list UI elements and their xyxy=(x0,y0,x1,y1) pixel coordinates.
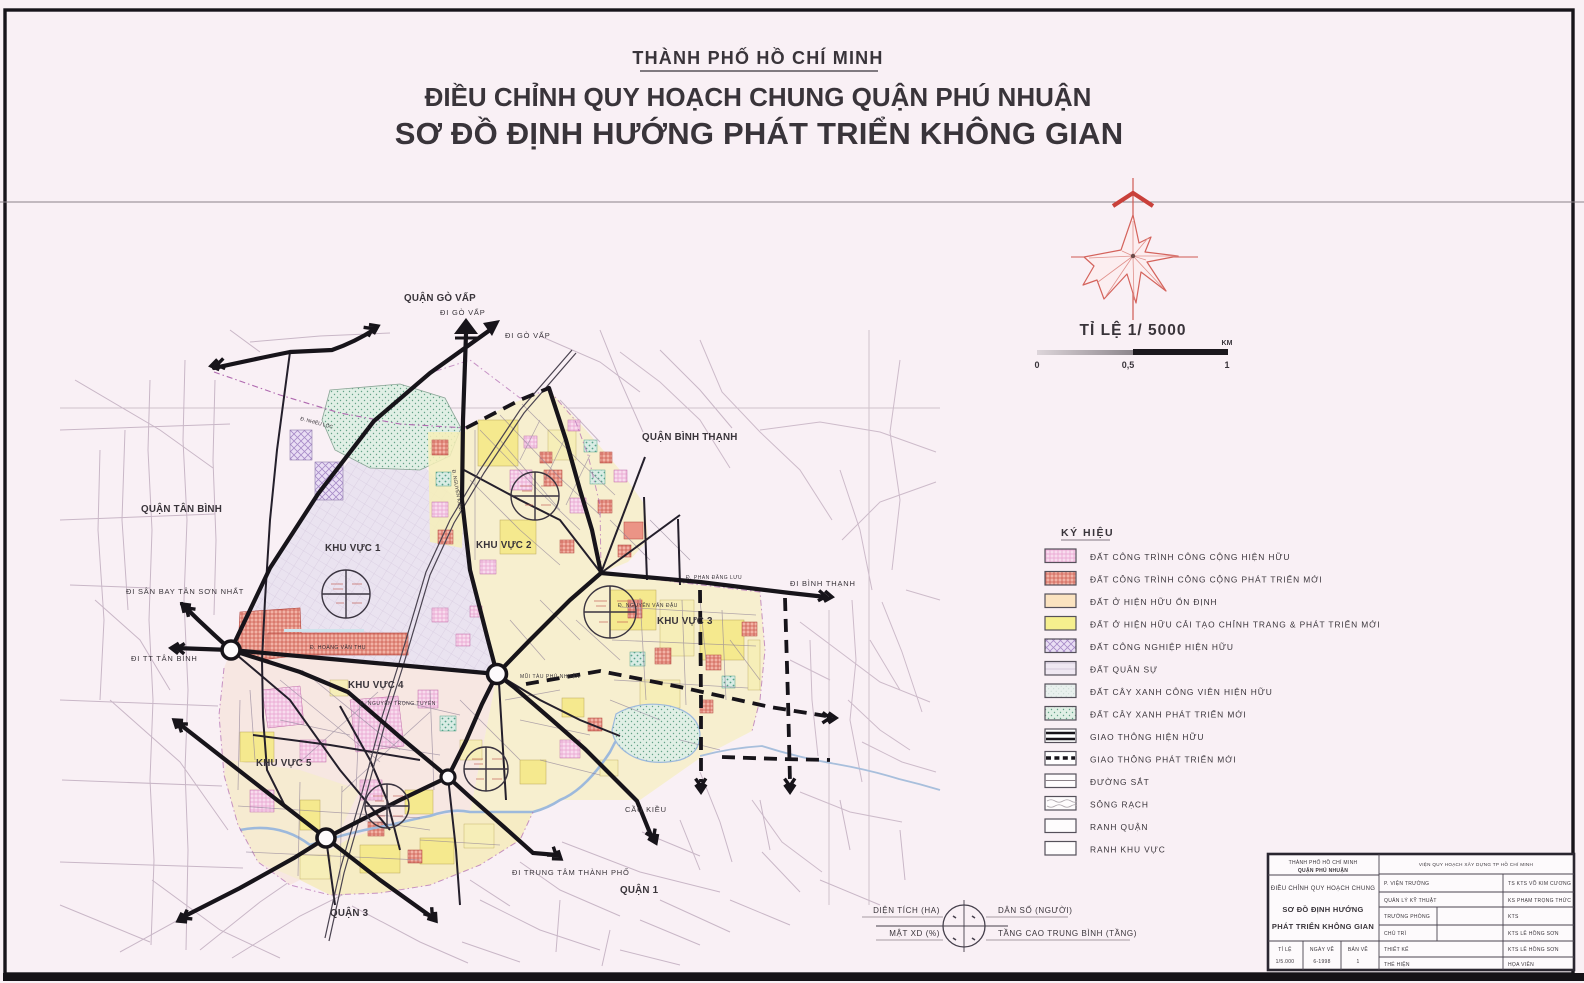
svg-text:ĐẤT CÂY XANH PHÁT TRIỂN MỚI: ĐẤT CÂY XANH PHÁT TRIỂN MỚI xyxy=(1090,709,1247,720)
svg-text:QUẬN 3: QUẬN 3 xyxy=(330,907,369,919)
svg-text:ĐẤT CÂY XANH CÔNG VIÊN HIỆN HỮ: ĐẤT CÂY XANH CÔNG VIÊN HIỆN HỮU xyxy=(1090,687,1273,697)
svg-text:PHÁT TRIỂN KHÔNG GIAN: PHÁT TRIỂN KHÔNG GIAN xyxy=(1272,922,1374,931)
svg-text:KTS LÊ HỒNG SƠN: KTS LÊ HỒNG SƠN xyxy=(1508,945,1559,953)
svg-text:KTS: KTS xyxy=(1508,914,1519,920)
svg-text:QUẢN LÝ KỸ THUẬT: QUẢN LÝ KỸ THUẬT xyxy=(1384,897,1437,904)
svg-text:Đ. HOÀNG VĂN THỤ: Đ. HOÀNG VĂN THỤ xyxy=(310,644,366,651)
svg-text:KÝ HIỆU: KÝ HIỆU xyxy=(1061,526,1114,539)
svg-text:ĐI TT TÂN BÌNH: ĐI TT TÂN BÌNH xyxy=(131,654,198,663)
svg-text:ĐI GÒ VẤP: ĐI GÒ VẤP xyxy=(505,330,551,340)
svg-text:KHU VỰC 5: KHU VỰC 5 xyxy=(256,758,312,769)
svg-text:CẦU KIỀU: CẦU KIỀU xyxy=(625,804,667,814)
svg-text:TỈ LỆ 1/ 5000: TỈ LỆ 1/ 5000 xyxy=(1080,321,1187,339)
svg-text:KTS LÊ HỒNG SƠN: KTS LÊ HỒNG SƠN xyxy=(1508,929,1559,937)
svg-text:Đ. NGUYỄN TRỌNG TUYỂN: Đ. NGUYỄN TRỌNG TUYỂN xyxy=(360,700,436,707)
svg-text:0,5: 0,5 xyxy=(1122,360,1135,370)
svg-text:HỌA VIÊN: HỌA VIÊN xyxy=(1508,960,1534,968)
svg-text:ĐI SÂN BAY TÂN SƠN NHẤT: ĐI SÂN BAY TÂN SƠN NHẤT xyxy=(126,586,244,596)
svg-text:ĐI BÌNH THẠNH: ĐI BÌNH THẠNH xyxy=(790,579,856,588)
svg-text:ĐẤT QUÂN SỰ: ĐẤT QUÂN SỰ xyxy=(1090,665,1158,675)
svg-text:BẢN VẼ: BẢN VẼ xyxy=(1348,946,1369,953)
svg-text:1/5.000: 1/5.000 xyxy=(1276,959,1295,965)
svg-text:THỂ HIỆN: THỂ HIỆN xyxy=(1384,960,1410,968)
svg-text:ĐẤT CÔNG TRÌNH CÔNG CỘNG PHÁT: ĐẤT CÔNG TRÌNH CÔNG CỘNG PHÁT TRIỂN MỚI xyxy=(1090,574,1322,585)
svg-text:RANH KHU VỰC: RANH KHU VỰC xyxy=(1090,845,1166,855)
svg-text:ĐẤT CÔNG NGHIỆP HIỆN HỮU: ĐẤT CÔNG NGHIỆP HIỆN HỮU xyxy=(1090,642,1234,652)
svg-text:THÀNH PHỐ HỒ CHÍ MINH: THÀNH PHỐ HỒ CHÍ MINH xyxy=(632,47,883,68)
svg-text:QUẬN GÒ VẤP: QUẬN GÒ VẤP xyxy=(404,292,476,304)
svg-text:ĐI TRUNG TÂM THÀNH PHỐ: ĐI TRUNG TÂM THÀNH PHỐ xyxy=(512,867,630,877)
svg-text:P. VIỆN TRƯỞNG: P. VIỆN TRƯỞNG xyxy=(1384,879,1429,887)
svg-text:Đ. PHAN ĐĂNG LƯU: Đ. PHAN ĐĂNG LƯU xyxy=(686,574,742,581)
svg-text:QUẬN TÂN BÌNH: QUẬN TÂN BÌNH xyxy=(141,503,222,515)
svg-text:THÀNH PHỐ HỒ CHÍ MINH: THÀNH PHỐ HỒ CHÍ MINH xyxy=(1289,859,1358,866)
svg-text:KHU VỰC 4: KHU VỰC 4 xyxy=(348,680,404,691)
svg-text:ĐẤT Ở HIỆN HỮU CẢI TẠO CHỈNH T: ĐẤT Ở HIỆN HỮU CẢI TẠO CHỈNH TRANG & PHÁ… xyxy=(1090,619,1380,630)
svg-text:KHU VỰC 1: KHU VỰC 1 xyxy=(325,543,381,554)
svg-text:1: 1 xyxy=(1356,959,1359,965)
svg-text:ĐI GÒ VẤP: ĐI GÒ VẤP xyxy=(440,307,486,317)
svg-text:ĐẤT CÔNG TRÌNH CÔNG CỘNG HIỆN: ĐẤT CÔNG TRÌNH CÔNG CỘNG HIỆN HỮU xyxy=(1090,551,1290,562)
svg-text:Đ. NGUYỄN VĂN ĐẬU: Đ. NGUYỄN VĂN ĐẬU xyxy=(618,602,678,609)
svg-text:GIAO THÔNG HIỆN HỮU: GIAO THÔNG HIỆN HỮU xyxy=(1090,732,1204,742)
svg-text:TỈ LỆ: TỈ LỆ xyxy=(1278,945,1292,953)
svg-text:DÂN SỐ (NGƯỜI): DÂN SỐ (NGƯỜI) xyxy=(998,905,1073,915)
svg-text:SƠ ĐỒ ĐỊNH HƯỚNG: SƠ ĐỒ ĐỊNH HƯỚNG xyxy=(1282,904,1363,914)
svg-text:QUẬN 1: QUẬN 1 xyxy=(620,884,659,896)
svg-text:ĐƯỜNG SẮT: ĐƯỜNG SẮT xyxy=(1090,777,1150,787)
svg-text:TS KTS VÕ KIM CƯƠNG: TS KTS VÕ KIM CƯƠNG xyxy=(1508,880,1571,887)
svg-text:ĐẤT Ở HIỆN HỮU ỔN ĐỊNH: ĐẤT Ở HIỆN HỮU ỔN ĐỊNH xyxy=(1090,596,1218,607)
svg-text:1: 1 xyxy=(1224,360,1229,370)
svg-text:SÔNG RẠCH: SÔNG RẠCH xyxy=(1090,800,1149,810)
svg-text:CHỦ TRÌ: CHỦ TRÌ xyxy=(1384,930,1407,937)
svg-text:KM: KM xyxy=(1222,340,1233,347)
svg-text:DIỆN TÍCH (HA): DIỆN TÍCH (HA) xyxy=(873,906,940,915)
svg-text:TẦNG CAO TRUNG BÌNH (TẦNG): TẦNG CAO TRUNG BÌNH (TẦNG) xyxy=(998,928,1137,938)
svg-text:RANH QUẬN: RANH QUẬN xyxy=(1090,822,1148,832)
svg-text:TRƯỞNG PHÒNG: TRƯỞNG PHÒNG xyxy=(1384,913,1430,920)
svg-text:KS PHẠM TRỌNG THỨC: KS PHẠM TRỌNG THỨC xyxy=(1508,897,1571,904)
svg-text:GIAO THÔNG PHÁT TRIỂN MỚI: GIAO THÔNG PHÁT TRIỂN MỚI xyxy=(1090,754,1236,765)
svg-text:MŨI TÀU PHÚ NHUẬN: MŨI TÀU PHÚ NHUẬN xyxy=(520,673,580,680)
svg-text:6-1998: 6-1998 xyxy=(1313,959,1330,965)
svg-text:ĐIỀU CHỈNH QUY HOẠCH CHUNG: ĐIỀU CHỈNH QUY HOẠCH CHUNG xyxy=(1271,885,1375,892)
svg-text:SƠ ĐỒ ĐỊNH HƯỚNG PHÁT TRIỂN KH: SƠ ĐỒ ĐỊNH HƯỚNG PHÁT TRIỂN KHÔNG GIAN xyxy=(395,115,1124,151)
svg-text:QUẬN BÌNH THẠNH: QUẬN BÌNH THẠNH xyxy=(642,431,738,443)
svg-text:THIẾT KẾ: THIẾT KẾ xyxy=(1384,946,1409,953)
svg-text:VIỆN QUY HOẠCH XÂY DỰNG TP HỒ: VIỆN QUY HOẠCH XÂY DỰNG TP HỒ CHÍ MINH xyxy=(1419,860,1533,867)
svg-text:NGÀY VẼ: NGÀY VẼ xyxy=(1310,946,1335,953)
svg-text:ĐIỀU CHỈNH QUY HOẠCH CHUNG QUẬ: ĐIỀU CHỈNH QUY HOẠCH CHUNG QUẬN PHÚ NHUẬ… xyxy=(425,82,1092,112)
svg-text:KHU VỰC 2: KHU VỰC 2 xyxy=(476,540,532,551)
svg-text:0: 0 xyxy=(1034,360,1039,370)
svg-text:KHU VỰC 3: KHU VỰC 3 xyxy=(657,616,713,627)
svg-text:MẬT XD (%): MẬT XD (%) xyxy=(889,929,940,938)
svg-text:QUẬN PHÚ NHUẬN: QUẬN PHÚ NHUẬN xyxy=(1298,867,1348,874)
